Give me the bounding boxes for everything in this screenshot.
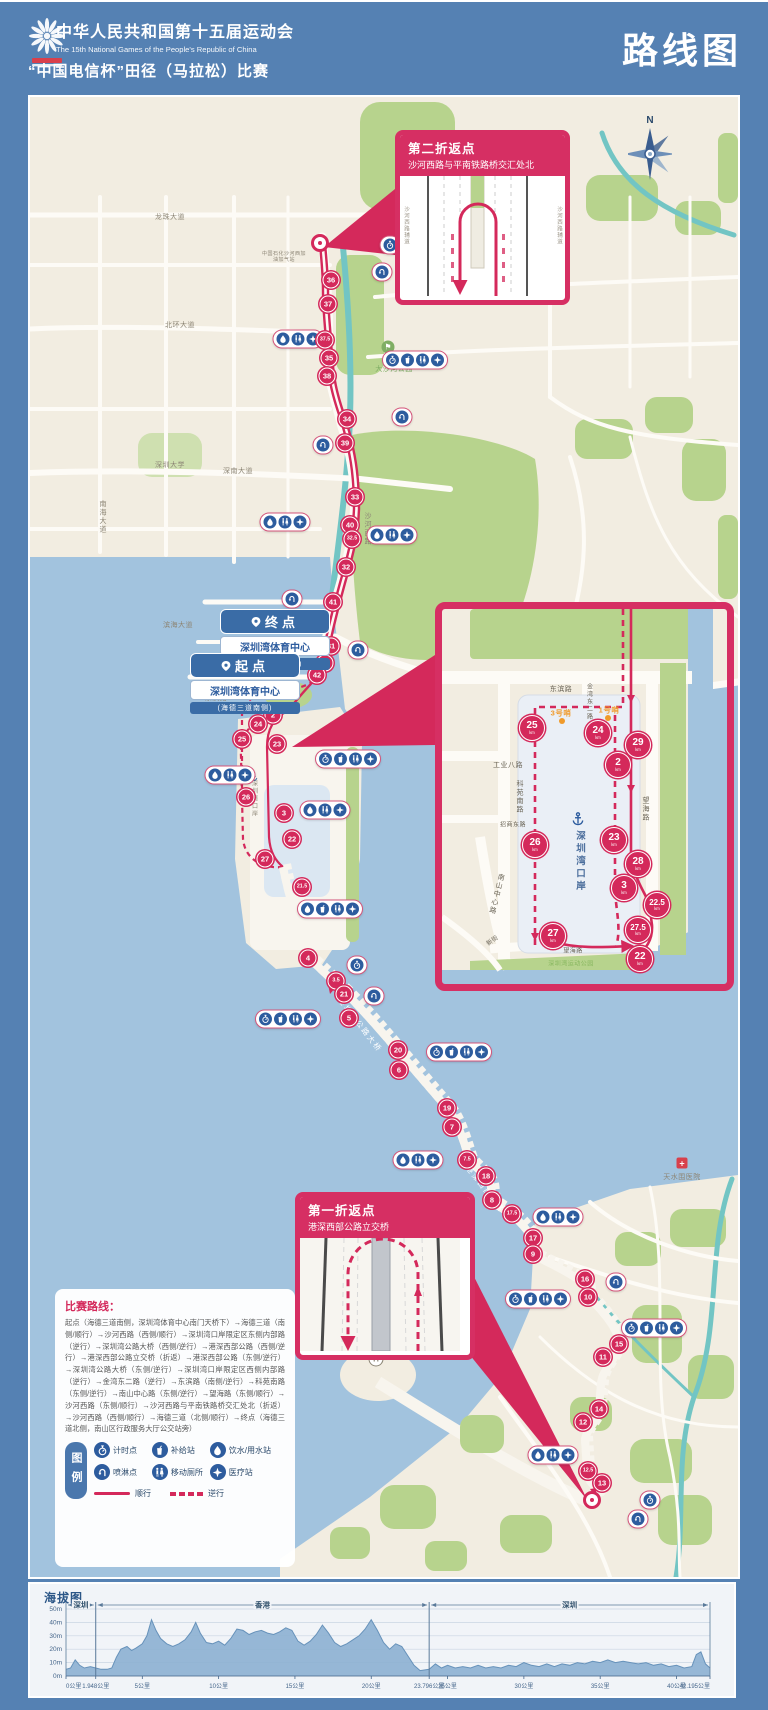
cup-icon xyxy=(401,354,414,367)
medical-icon xyxy=(346,903,359,916)
spray-icon xyxy=(352,644,365,657)
medical-icon xyxy=(294,516,307,529)
km-marker-6: 6 xyxy=(391,1062,408,1079)
inset-km-marker-23: 23km xyxy=(601,827,627,853)
start-note: (海德三道南侧) xyxy=(190,702,300,714)
route-map: 363737.535383439334032.53241313042224252… xyxy=(28,95,740,1579)
event-title-en: The 15th National Games of the People's … xyxy=(56,45,294,54)
start-label: 起点 xyxy=(235,656,269,675)
map-label: 南海大道 xyxy=(97,500,107,534)
first-turnaround-subtitle: 港深西部公路立交桥 xyxy=(308,1220,462,1233)
map-label: 天水围医院 xyxy=(663,1172,701,1182)
second-turnaround-subtitle: 沙河西路与平南铁路桥交汇处北 xyxy=(408,158,557,171)
km-marker-7: 7 xyxy=(444,1119,461,1136)
spray-icon xyxy=(368,990,381,1003)
timer-icon xyxy=(94,1442,110,1458)
finish-label: 终点 xyxy=(265,612,299,631)
svg-text:25公里: 25公里 xyxy=(438,1683,457,1690)
inset-km-marker-24: 24km xyxy=(585,720,611,746)
medical-icon xyxy=(304,1013,317,1026)
drop-icon xyxy=(371,529,384,542)
inset-km-marker-2: 2km xyxy=(605,752,631,778)
flyover-diagram xyxy=(300,1238,460,1351)
km-marker-32: 32 xyxy=(338,559,355,576)
km-marker-12: 12 xyxy=(575,1414,592,1431)
facility-pill xyxy=(347,956,368,975)
dashed-line-sample xyxy=(170,1492,203,1496)
poster: 中华人民共和国第十五届运动会 The 15th National Games o… xyxy=(0,0,768,1710)
km-marker-10: 10 xyxy=(580,1289,597,1306)
km-marker-26: 26 xyxy=(238,789,255,806)
drop-icon xyxy=(397,1154,410,1167)
toilet-icon xyxy=(547,1449,560,1462)
timer-icon xyxy=(351,959,364,972)
cup-icon xyxy=(524,1293,537,1306)
inset-label: 招商东路 xyxy=(500,820,526,829)
svg-text:50m: 50m xyxy=(49,1606,62,1613)
inset-km-marker-22.5: 22.5km xyxy=(644,892,670,918)
turnaround-point-2 xyxy=(583,1491,601,1509)
spray-icon xyxy=(376,266,389,279)
map-label: 中国石化沙河西加油加气站 xyxy=(260,251,308,264)
inset-km-marker-25: 25km xyxy=(519,715,545,741)
km-marker-20: 20 xyxy=(390,1042,407,1059)
medical-icon xyxy=(670,1322,683,1335)
facility-pill xyxy=(364,987,385,1006)
facility-pill xyxy=(426,1043,492,1062)
km-marker-21: 21 xyxy=(336,986,353,1003)
timer-icon xyxy=(509,1293,522,1306)
inset-label: 东滨路 xyxy=(550,684,573,694)
facility-pill xyxy=(372,263,393,282)
second-turnaround-title: 第二折返点 xyxy=(408,138,557,157)
medical-icon xyxy=(364,753,377,766)
map-label: 滨海大道 xyxy=(163,620,193,630)
facility-pill xyxy=(297,900,363,919)
cup-icon xyxy=(334,753,347,766)
toilet-icon xyxy=(416,354,429,367)
svg-text:5公里: 5公里 xyxy=(135,1683,150,1690)
km-marker-7.5: 7.5 xyxy=(459,1152,476,1169)
elevation-panel: 海拔图 0m10m20m30m40m50m0公里1.948公里5公里10公里15… xyxy=(28,1582,736,1698)
timer-icon xyxy=(430,1046,443,1059)
km-marker-35: 35 xyxy=(321,350,338,367)
hospital-icon: + xyxy=(677,1158,688,1169)
svg-text:深圳: 深圳 xyxy=(562,1600,577,1610)
route-description-body: 起点（海德三道南侧，深圳湾体育中心南门天桥下）→海德三道（南侧/顺行）→沙河西路… xyxy=(65,1317,285,1435)
svg-text:30公里: 30公里 xyxy=(515,1683,534,1690)
toilet-icon xyxy=(552,1211,565,1224)
spray-icon xyxy=(632,1513,645,1526)
toilet-icon xyxy=(292,333,305,346)
legend-item-medical: 医疗站 xyxy=(210,1464,285,1480)
inset-km-marker-22: 22km xyxy=(627,946,653,972)
inset-label: 深圳湾口岸 xyxy=(572,831,586,894)
inset-km-marker-29: 29km xyxy=(625,732,651,758)
svg-text:1.948公里: 1.948公里 xyxy=(82,1683,109,1690)
event-title: 中华人民共和国第十五届运动会 xyxy=(56,18,294,42)
facility-pill xyxy=(505,1290,571,1309)
svg-text:20公里: 20公里 xyxy=(362,1683,381,1690)
facility-pill xyxy=(528,1446,579,1465)
km-marker-5: 5 xyxy=(341,1010,358,1027)
km-marker-32.5: 32.5 xyxy=(344,531,361,548)
km-marker-25: 25 xyxy=(234,731,251,748)
cup-icon xyxy=(445,1046,458,1059)
map-label: 深圳大学 xyxy=(155,460,185,470)
spray-icon xyxy=(610,1276,623,1289)
inset-label: 金湾东二路 xyxy=(585,683,594,721)
facility-pill xyxy=(367,526,418,545)
facility-pill xyxy=(640,1491,661,1510)
medical-icon xyxy=(475,1046,488,1059)
spray-icon xyxy=(94,1464,110,1480)
km-marker-18: 18 xyxy=(478,1168,495,1185)
inset-label: 望海路 xyxy=(563,946,583,955)
facility-pill xyxy=(533,1208,584,1227)
km-marker-11: 11 xyxy=(595,1349,612,1366)
km-marker-17.5: 17.5 xyxy=(504,1206,521,1223)
svg-text:0公里: 0公里 xyxy=(66,1683,81,1690)
timer-icon xyxy=(319,753,332,766)
toilet-icon xyxy=(655,1322,668,1335)
drop-icon xyxy=(210,1442,226,1458)
cup-icon xyxy=(316,903,329,916)
km-marker-39: 39 xyxy=(337,435,354,452)
map-label: 龙珠大道 xyxy=(155,212,185,222)
toilet-icon xyxy=(386,529,399,542)
header: 中华人民共和国第十五届运动会 The 15th National Games o… xyxy=(0,2,768,97)
cup-icon xyxy=(640,1322,653,1335)
inset-label: 新街 xyxy=(484,933,500,948)
km-marker-33: 33 xyxy=(347,489,364,506)
medical-icon xyxy=(334,804,347,817)
facility-pill xyxy=(255,1010,321,1029)
inset-km-marker-28: 28km xyxy=(625,851,651,877)
facility-pill xyxy=(392,408,413,427)
km-marker-38: 38 xyxy=(319,368,336,385)
km-marker-19: 19 xyxy=(439,1100,456,1117)
toilet-icon xyxy=(224,769,237,782)
inset-label: 1号哨 xyxy=(599,705,620,716)
drop-icon xyxy=(209,769,222,782)
route-description-title: 比赛路线： xyxy=(65,1298,285,1314)
inset-label: 深圳湾运动公园 xyxy=(548,959,594,968)
cup-icon xyxy=(274,1013,287,1026)
toilet-icon xyxy=(331,903,344,916)
km-marker-22: 22 xyxy=(284,831,301,848)
svg-text:0m: 0m xyxy=(53,1673,62,1680)
spray-icon xyxy=(396,411,409,424)
km-marker-12.5: 12.5 xyxy=(580,1463,597,1480)
toilet-icon xyxy=(319,804,332,817)
facility-pill xyxy=(300,801,351,820)
elevation-chart: 0m10m20m30m40m50m0公里1.948公里5公里10公里15公里20… xyxy=(30,1598,734,1696)
drop-icon xyxy=(277,333,290,346)
drop-icon xyxy=(537,1211,550,1224)
uturn-diagram xyxy=(400,176,555,296)
km-marker-14: 14 xyxy=(591,1401,608,1418)
toilet-icon xyxy=(539,1293,552,1306)
medical-icon xyxy=(427,1154,440,1167)
inset-label: 科苑南路 xyxy=(514,780,524,814)
route-description-panel: 比赛路线： 起点（海德三道南侧，深圳湾体育中心南门天桥下）→海德三道（南侧/顺行… xyxy=(55,1289,295,1567)
medical-icon xyxy=(567,1211,580,1224)
legend-items: 计时点补给站饮水/用水站喷淋点移动厕所医疗站 xyxy=(94,1442,285,1480)
toilet-icon xyxy=(279,516,292,529)
svg-text:42.195公里: 42.195公里 xyxy=(680,1683,710,1690)
timer-icon xyxy=(386,354,399,367)
svg-text:30m: 30m xyxy=(49,1633,62,1640)
svg-text:10m: 10m xyxy=(49,1660,62,1667)
legend: 图例 计时点补给站饮水/用水站喷淋点移动厕所医疗站 顺行 逆行 xyxy=(65,1442,285,1499)
pin-icon xyxy=(221,661,231,671)
first-turnaround-callout: 第一折返点 港深西部公路立交桥 xyxy=(295,1192,475,1360)
medical-icon xyxy=(210,1464,226,1480)
km-marker-24: 24 xyxy=(250,716,267,733)
inset-km-marker-27: 27km xyxy=(540,923,566,949)
km-marker-15: 15 xyxy=(611,1336,628,1353)
toilet-icon xyxy=(460,1046,473,1059)
toilet-icon xyxy=(152,1464,168,1480)
inset-label: 3号哨 xyxy=(551,708,572,719)
timer-icon xyxy=(625,1322,638,1335)
drop-icon xyxy=(301,903,314,916)
svg-text:深圳: 深圳 xyxy=(73,1600,88,1610)
facility-pill xyxy=(628,1510,649,1529)
toilet-icon xyxy=(289,1013,302,1026)
legend-item-drop: 饮水/用水站 xyxy=(210,1442,285,1458)
svg-text:香港: 香港 xyxy=(254,1600,270,1610)
facility-pill xyxy=(606,1273,627,1292)
svg-text:15公里: 15公里 xyxy=(286,1683,305,1690)
first-turnaround-title: 第一折返点 xyxy=(308,1200,462,1219)
km-marker-41: 41 xyxy=(325,594,342,611)
legend-item-spray: 喷淋点 xyxy=(94,1464,152,1480)
km-marker-34: 34 xyxy=(339,411,356,428)
km-marker-13: 13 xyxy=(594,1475,611,1492)
cup-icon xyxy=(152,1442,168,1458)
km-marker-3: 3 xyxy=(276,805,293,822)
compass-n-label: N xyxy=(628,115,672,126)
compass-icon: N xyxy=(628,115,672,185)
race-subtitle: “中国电信杯”田径（马拉松）比赛 xyxy=(28,60,428,81)
facility-pill xyxy=(260,513,311,532)
km-marker-9: 9 xyxy=(525,1246,542,1263)
drop-icon xyxy=(532,1449,545,1462)
legend-item-cup: 补给站 xyxy=(152,1442,210,1458)
km-marker-23: 23 xyxy=(269,736,286,753)
side-road-label: 沙河西路辅道 xyxy=(402,206,410,245)
km-marker-36: 36 xyxy=(323,272,340,289)
map-label: 深南大道 xyxy=(223,466,253,476)
page-title: 路线图 xyxy=(622,22,742,74)
svg-text:10公里: 10公里 xyxy=(209,1683,228,1690)
start-venue: 深圳湾体育中心 xyxy=(190,680,300,700)
km-marker-27: 27 xyxy=(257,851,274,868)
map-label: 北环大道 xyxy=(165,320,195,330)
facility-pill xyxy=(205,766,256,785)
spray-icon xyxy=(286,593,299,606)
toilet-icon xyxy=(349,753,362,766)
dashed-line-label: 逆行 xyxy=(208,1488,224,1499)
inset-label: 南山中心路 xyxy=(486,872,506,916)
facility-pill xyxy=(382,351,448,370)
pin-icon xyxy=(251,617,261,627)
km-marker-16: 16 xyxy=(577,1271,594,1288)
spray-icon xyxy=(317,439,330,452)
toilet-icon xyxy=(412,1154,425,1167)
inset-km-marker-26: 26km xyxy=(522,832,548,858)
start-point-box: 起点 深圳湾体育中心 (海德三道南侧) xyxy=(190,653,300,714)
facility-pill xyxy=(348,641,369,660)
svg-text:35公里: 35公里 xyxy=(591,1683,610,1690)
legend-item-toilet: 移动厕所 xyxy=(152,1464,210,1480)
facility-pill xyxy=(313,436,334,455)
facility-pill xyxy=(282,590,303,609)
side-road-label: 沙河西路辅道 xyxy=(555,206,563,245)
km-marker-17: 17 xyxy=(525,1230,542,1247)
solid-line-sample xyxy=(94,1492,130,1495)
turnaround-point-1 xyxy=(311,234,329,252)
svg-text:40m: 40m xyxy=(49,1619,62,1626)
inset-km-marker-3: 3km xyxy=(611,875,637,901)
drop-icon xyxy=(304,804,317,817)
km-marker-4: 4 xyxy=(300,950,317,967)
km-marker-37: 37 xyxy=(320,296,337,313)
legend-item-timer: 计时点 xyxy=(94,1442,152,1458)
medical-icon xyxy=(431,354,444,367)
km-marker-37.5: 37.5 xyxy=(317,332,334,349)
medical-icon xyxy=(401,529,414,542)
second-turnaround-callout: 第二折返点 沙河西路与平南铁路桥交汇处北 xyxy=(395,130,570,305)
km-marker-21.5: 21.5 xyxy=(294,879,311,896)
solid-line-label: 顺行 xyxy=(135,1488,151,1499)
facility-pill xyxy=(315,750,381,769)
inset-label: 望海路 xyxy=(640,796,650,822)
km-marker-8: 8 xyxy=(484,1192,501,1209)
inset-label: 工业八路 xyxy=(493,760,523,770)
anchor-icon xyxy=(571,812,586,827)
svg-text:20m: 20m xyxy=(49,1646,62,1653)
timer-icon xyxy=(259,1013,272,1026)
inset-km-marker-27.5: 27.5km xyxy=(625,917,651,943)
facility-pill xyxy=(621,1319,687,1338)
medical-icon xyxy=(554,1293,567,1306)
medical-icon xyxy=(239,769,252,782)
drop-icon xyxy=(264,516,277,529)
facility-pill xyxy=(393,1151,444,1170)
medical-icon xyxy=(562,1449,575,1462)
legend-title: 图例 xyxy=(65,1442,87,1499)
timer-icon xyxy=(644,1494,657,1507)
